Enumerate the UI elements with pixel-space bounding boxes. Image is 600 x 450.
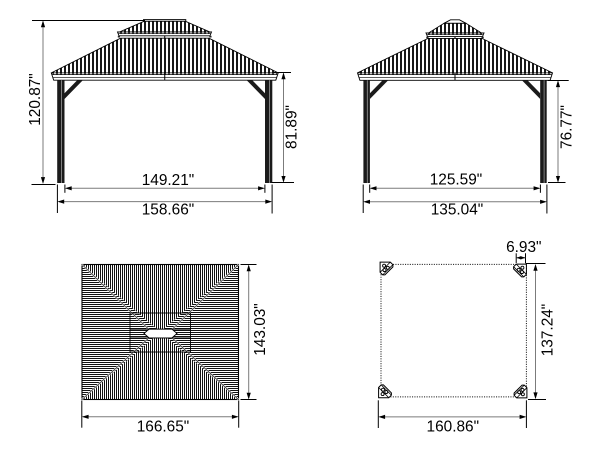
svg-text:81.89": 81.89"	[284, 105, 301, 149]
svg-text:149.21": 149.21"	[142, 172, 195, 189]
svg-text:76.77": 76.77"	[559, 105, 576, 149]
svg-text:6.93": 6.93"	[506, 239, 541, 256]
svg-text:125.59": 125.59"	[430, 172, 483, 189]
svg-text:160.86": 160.86"	[427, 418, 480, 435]
svg-text:158.66": 158.66"	[142, 201, 195, 218]
svg-text:137.24": 137.24"	[539, 304, 556, 357]
svg-text:166.65": 166.65"	[137, 419, 190, 436]
svg-text:135.04": 135.04"	[431, 202, 484, 219]
svg-text:143.03": 143.03"	[252, 303, 269, 356]
svg-text:120.87": 120.87"	[27, 73, 44, 126]
